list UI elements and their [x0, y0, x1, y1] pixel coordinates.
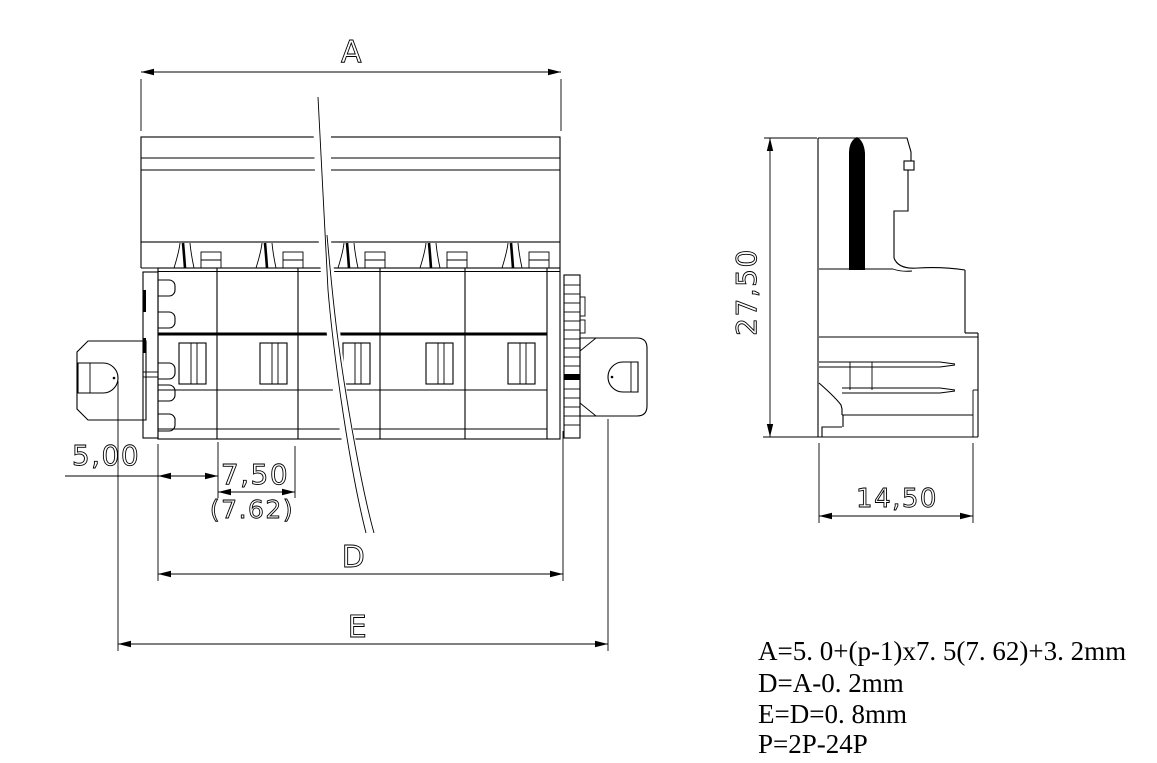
dim-depth: 14,50 [819, 443, 973, 523]
screw-slot [343, 343, 370, 384]
left-mounting-ear [77, 341, 146, 420]
dim-7-5-label: 7,50 [221, 458, 289, 491]
right-mounting-ear [580, 338, 647, 416]
wire-funnel [256, 243, 303, 268]
break-line [312, 88, 377, 535]
formula-d: D=A-0. 2mm [758, 668, 904, 698]
shroud [141, 137, 560, 268]
dim-27-5-label: 27,50 [730, 248, 763, 336]
dim-overall-width: A [141, 35, 561, 131]
screw-slot [179, 343, 206, 384]
dim-7-62-label: (7.62) [210, 495, 294, 524]
dim-pitch: 7,50 (7.62) [210, 442, 295, 524]
formula-notes: A=5. 0+(p-1)x7. 5(7. 62)+3. 2mm D=A-0. 2… [758, 636, 1126, 759]
screw-slot [426, 343, 453, 384]
pin-contact [849, 137, 865, 270]
wire-funnel [174, 243, 221, 268]
side-view: 27,50 14,50 [730, 137, 978, 523]
contact-band [141, 243, 560, 272]
screw-slots [179, 343, 535, 384]
technical-drawing: A 5,00 7,50 (7.62) D [0, 0, 1157, 763]
screw-slot [260, 343, 287, 384]
right-serrated-strip [564, 275, 585, 438]
terminal-body [158, 268, 560, 439]
wire-funnel [420, 243, 467, 268]
dim-d-label: D [342, 540, 367, 575]
front-view: A 5,00 7,50 (7.62) D [65, 35, 647, 651]
drawing-canvas: A 5,00 7,50 (7.62) D [0, 0, 1157, 763]
screw-slot [508, 343, 535, 384]
dim-a-label: A [341, 35, 363, 70]
formula-e: E=D=0. 8mm [758, 699, 907, 729]
formula-p: P=2P-24P [758, 729, 868, 759]
dim-height: 27,50 [730, 138, 817, 437]
left-strip [143, 272, 175, 438]
dim-e-label: E [348, 610, 368, 645]
wire-funnel [502, 243, 549, 268]
formula-a: A=5. 0+(p-1)x7. 5(7. 62)+3. 2mm [758, 636, 1126, 666]
wire-funnel [338, 243, 385, 268]
dim-offset: 5,00 [65, 439, 218, 479]
side-profile [763, 137, 978, 437]
dim-5-label: 5,00 [72, 439, 140, 472]
dim-14-5-label: 14,50 [856, 484, 938, 514]
